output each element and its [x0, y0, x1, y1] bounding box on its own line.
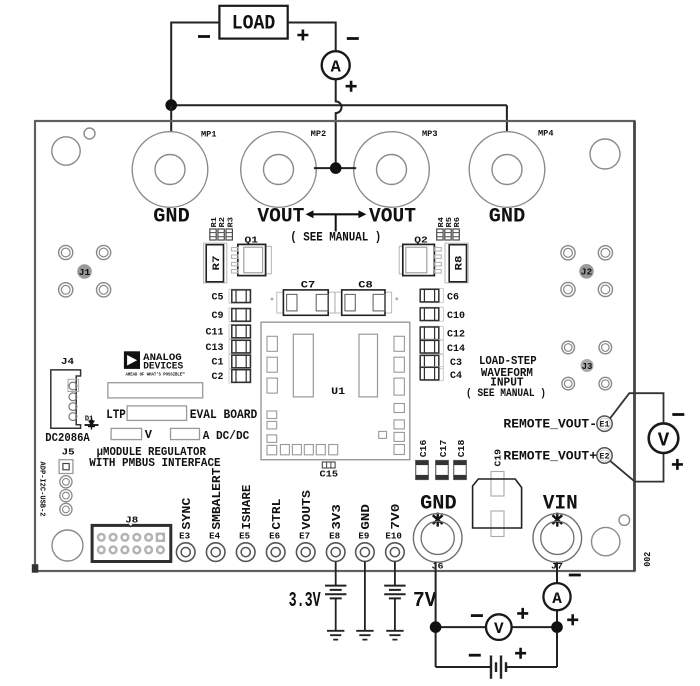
svg-text:3.3V: 3.3V: [289, 590, 321, 613]
svg-text:C19: C19: [492, 449, 503, 467]
svg-text:R2: R2: [219, 216, 227, 227]
svg-text:GND: GND: [360, 504, 373, 530]
svg-text:LOAD: LOAD: [232, 13, 276, 36]
svg-text:E3: E3: [179, 532, 190, 542]
svg-text:CTRL: CTRL: [271, 498, 284, 529]
svg-text:J8: J8: [125, 514, 138, 525]
svg-text:A: A: [552, 590, 562, 608]
svg-text:E2: E2: [600, 453, 610, 462]
svg-text:MP2: MP2: [311, 130, 327, 139]
svg-text:VOUT: VOUT: [257, 206, 304, 229]
svg-text:C10: C10: [447, 311, 465, 322]
svg-text:REMOTE_VOUT+: REMOTE_VOUT+: [503, 449, 597, 463]
svg-text:7V0: 7V0: [390, 503, 403, 529]
svg-text:E4: E4: [209, 532, 221, 542]
svg-text:E8: E8: [329, 532, 340, 542]
svg-text:( SEE MANUAL ): ( SEE MANUAL ): [290, 231, 381, 245]
svg-text:C5: C5: [211, 292, 223, 303]
svg-text:A DC/DC: A DC/DC: [203, 429, 250, 443]
svg-text:C4: C4: [450, 371, 462, 382]
svg-text:E10: E10: [385, 532, 402, 542]
svg-text:E5: E5: [239, 532, 250, 542]
svg-text:DEVICES: DEVICES: [143, 360, 183, 372]
svg-text:R6: R6: [454, 216, 462, 227]
svg-text:R3: R3: [227, 216, 235, 227]
svg-text:C18: C18: [456, 439, 467, 457]
svg-text:C14: C14: [447, 344, 465, 355]
svg-text:E1: E1: [600, 421, 610, 430]
svg-text:C15: C15: [320, 469, 339, 480]
svg-text:GND: GND: [489, 206, 526, 229]
svg-text:EVAL BOARD: EVAL BOARD: [190, 407, 258, 422]
svg-text:R8: R8: [454, 256, 466, 271]
svg-text:7V: 7V: [413, 590, 437, 613]
svg-text:REMOTE_VOUT-: REMOTE_VOUT-: [503, 417, 597, 431]
svg-text:VOUT: VOUT: [369, 206, 416, 229]
svg-text:GND: GND: [420, 493, 457, 516]
svg-text:J5: J5: [62, 446, 75, 457]
svg-text:C17: C17: [438, 439, 449, 457]
svg-text:DC2086A: DC2086A: [45, 431, 90, 445]
svg-text:MP3: MP3: [422, 130, 438, 139]
svg-text:002: 002: [643, 552, 653, 567]
svg-text:C16: C16: [418, 439, 429, 457]
svg-text:MP1: MP1: [201, 131, 217, 140]
svg-text:MP4: MP4: [538, 129, 554, 138]
svg-text:R5: R5: [446, 216, 454, 227]
svg-text:( SEE MANUAL ): ( SEE MANUAL ): [466, 388, 546, 400]
svg-text:R1: R1: [211, 216, 219, 227]
svg-text:C12: C12: [447, 330, 465, 341]
svg-text:C2: C2: [211, 372, 223, 383]
svg-text:WITH PMBUS INTERFACE: WITH PMBUS INTERFACE: [89, 456, 220, 470]
svg-text:C13: C13: [205, 343, 223, 354]
svg-text:VIN: VIN: [543, 493, 578, 516]
svg-text:AHEAD OF WHAT'S POSSIBLE™: AHEAD OF WHAT'S POSSIBLE™: [126, 372, 185, 378]
svg-text:LTP: LTP: [106, 407, 126, 422]
svg-text:C9: C9: [211, 311, 223, 322]
svg-text:C11: C11: [205, 328, 223, 339]
svg-text:R7: R7: [211, 256, 223, 271]
svg-text:C6: C6: [447, 292, 459, 303]
svg-text:SMBALERT: SMBALERT: [211, 467, 224, 529]
svg-text:V: V: [145, 428, 153, 442]
svg-text:V: V: [658, 429, 670, 451]
svg-text:C1: C1: [211, 358, 223, 369]
svg-text:J4: J4: [61, 356, 74, 367]
svg-text:GND: GND: [153, 206, 190, 229]
svg-text:C3: C3: [450, 358, 462, 369]
svg-text:VOUTS: VOUTS: [301, 490, 314, 530]
svg-text:U1: U1: [331, 386, 345, 398]
svg-text:3V3: 3V3: [331, 504, 344, 530]
svg-text:J3: J3: [582, 362, 593, 372]
svg-text:ISHARE: ISHARE: [241, 485, 254, 530]
svg-text:E9: E9: [358, 532, 369, 542]
svg-text:R4: R4: [438, 216, 446, 227]
svg-text:J6: J6: [432, 561, 444, 571]
svg-text:E6: E6: [269, 532, 280, 542]
svg-text:SYNC: SYNC: [181, 497, 194, 529]
svg-text:J2: J2: [581, 267, 593, 278]
svg-text:V: V: [494, 620, 504, 638]
svg-text:ADP-I2C-USB-2: ADP-I2C-USB-2: [37, 462, 45, 517]
svg-text:E7: E7: [299, 532, 310, 542]
svg-text:J1: J1: [79, 267, 91, 278]
svg-text:A: A: [331, 59, 342, 78]
